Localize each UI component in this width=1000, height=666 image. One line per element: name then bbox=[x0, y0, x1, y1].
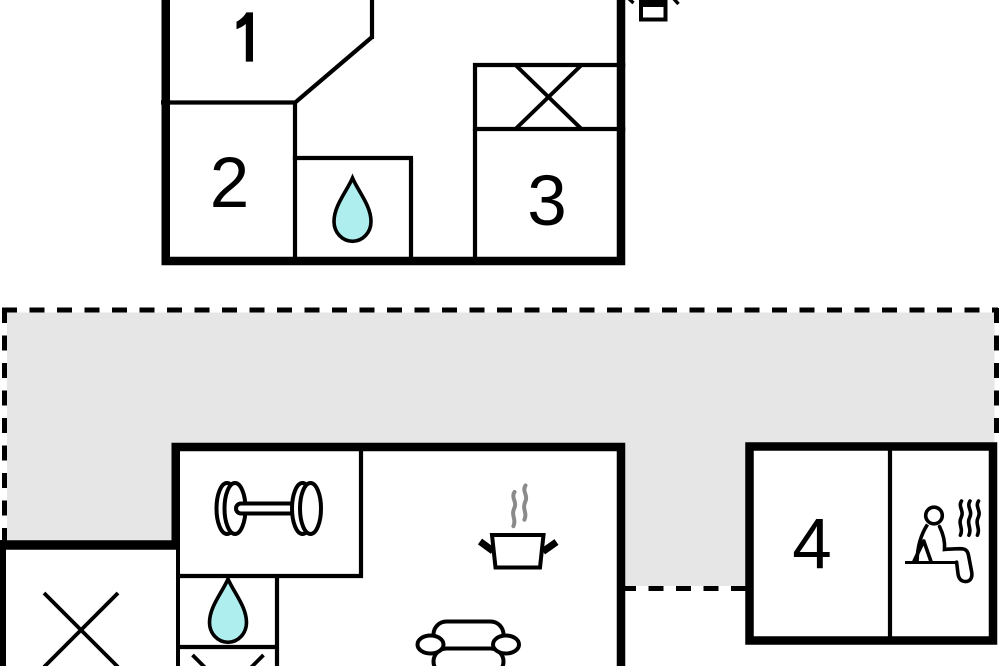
svg-text:3: 3 bbox=[527, 162, 567, 241]
svg-text:4: 4 bbox=[792, 505, 832, 584]
svg-text:2: 2 bbox=[210, 144, 250, 223]
